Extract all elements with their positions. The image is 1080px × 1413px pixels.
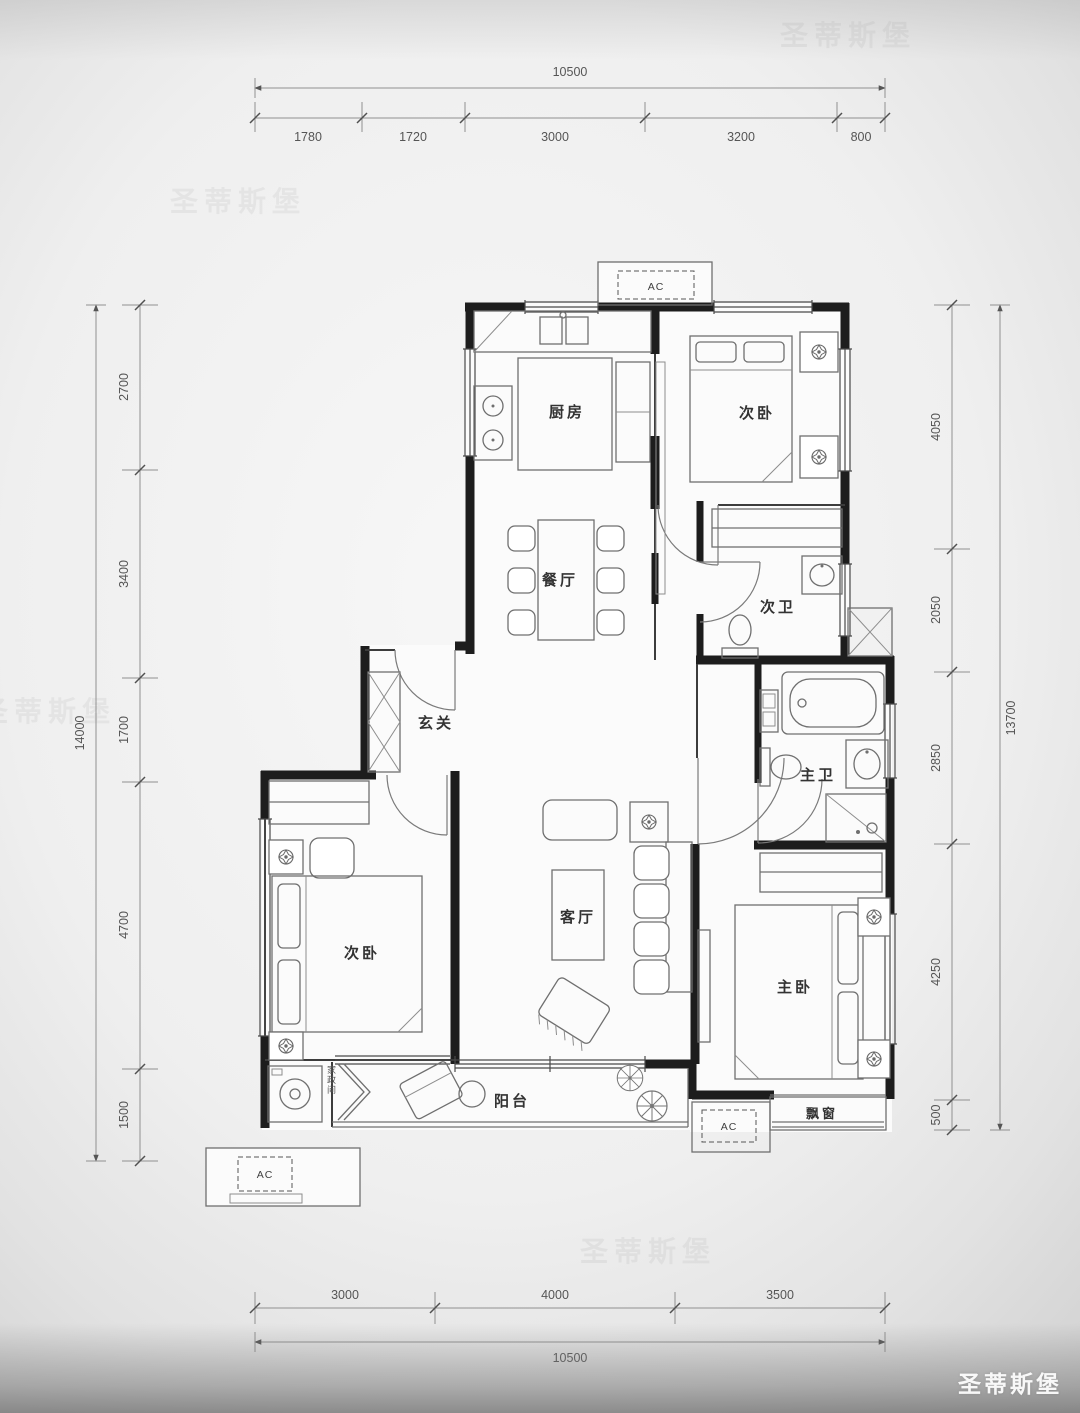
room-label-kitchen: 厨房 [549, 403, 585, 421]
dim-left-seg: 4700 [117, 911, 131, 939]
dim-top-seg: 800 [851, 130, 872, 144]
room-label-dining: 餐厅 [542, 571, 578, 589]
floor-plan-drawing: 10500 1780 1720 3000 3200 800 3000 4000 … [0, 0, 1080, 1413]
lamp-icon [812, 345, 826, 359]
chair-icon [310, 838, 354, 878]
dim-top-total: 10500 [553, 65, 588, 79]
dim-left-seg: 3400 [117, 560, 131, 588]
dim-top-seg: 3000 [541, 130, 569, 144]
room-label-foyer: 玄关 [418, 714, 454, 732]
ac-label: AC [648, 281, 665, 293]
lamp-icon [812, 450, 826, 464]
room-label-bath2: 次卫 [760, 598, 796, 616]
dim-bottom-total: 10500 [553, 1351, 588, 1365]
plant-icon [617, 1065, 643, 1091]
dim-top-seg: 1780 [294, 130, 322, 144]
dim-right-total: 13700 [1004, 701, 1018, 736]
brand-watermark: 圣蒂斯堡 [958, 1365, 1062, 1399]
window-kitchen-left [463, 349, 477, 456]
room-label-living: 客厅 [559, 908, 596, 926]
plant-icon [637, 1091, 667, 1121]
dim-left-seg: 1700 [117, 716, 131, 744]
dim-chain-top: 10500 1780 1720 3000 3200 800 [250, 65, 890, 144]
dim-chain-right: 4050 2050 2850 4250 500 13700 [929, 300, 1018, 1135]
dim-top-seg: 1720 [399, 130, 427, 144]
room-label-laundry: 家政间 [326, 1064, 336, 1095]
dim-chain-left: 14000 2700 3400 1700 4700 1500 [73, 300, 158, 1166]
room-label-bedroom2: 次卧 [739, 404, 775, 422]
room-label-bedroom3: 次卧 [344, 944, 380, 962]
equipment-shaft [848, 608, 892, 656]
lamp-icon [867, 1052, 881, 1066]
room-label-master-bedroom: 主卧 [777, 978, 813, 996]
dim-left-seg: 2700 [117, 373, 131, 401]
window-bedroom2-right [838, 349, 852, 471]
dim-top-seg: 3200 [727, 130, 755, 144]
dim-chain-bottom: 3000 4000 3500 10500 [250, 1288, 890, 1365]
room-label-bay-window: 飘窗 [806, 1106, 838, 1121]
window-bedroom2-top [714, 300, 812, 314]
dim-left-seg: 1500 [117, 1101, 131, 1129]
lamp-icon [279, 1039, 293, 1053]
dim-bottom-seg: 3500 [766, 1288, 794, 1302]
dim-right-seg: 4050 [929, 413, 943, 441]
dim-right-seg: 4250 [929, 958, 943, 986]
dim-bottom-seg: 3000 [331, 1288, 359, 1302]
dim-right-seg: 2050 [929, 596, 943, 624]
dim-bottom-seg: 4000 [541, 1288, 569, 1302]
ac-label: AC [721, 1121, 738, 1133]
dim-right-seg: 2850 [929, 744, 943, 772]
room-label-master-bath: 主卫 [800, 766, 836, 784]
dim-right-seg: 500 [929, 1105, 943, 1126]
window-master-bath-right [883, 704, 897, 778]
ac-label: AC [257, 1169, 274, 1181]
room-label-balcony: 阳台 [494, 1092, 530, 1110]
dim-left-total: 14000 [73, 716, 87, 751]
lamp-icon [279, 850, 293, 864]
lamp-icon [867, 910, 881, 924]
window-bath2-right [838, 564, 852, 636]
